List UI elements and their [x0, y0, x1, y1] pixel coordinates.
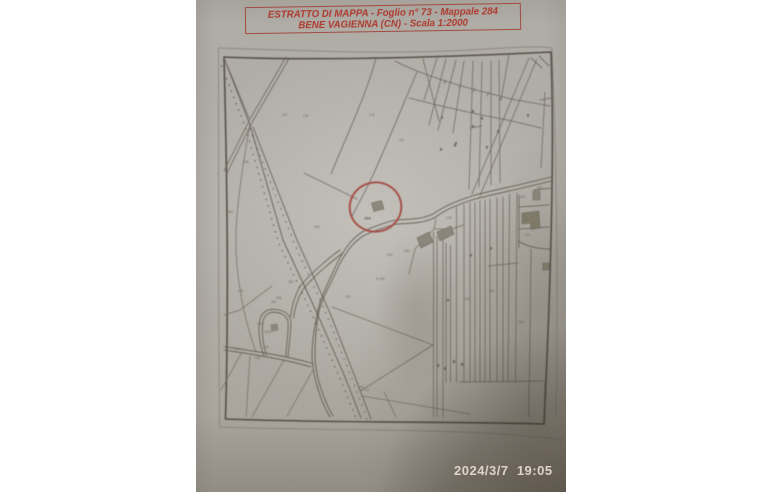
svg-text:297: 297	[525, 233, 531, 237]
svg-text:111: 111	[399, 138, 404, 142]
svg-text:301: 301	[271, 300, 277, 304]
svg-text:716: 716	[345, 295, 351, 299]
svg-text:278: 278	[446, 216, 452, 220]
svg-text:152: 152	[537, 186, 543, 190]
svg-text:295: 295	[314, 225, 320, 229]
svg-text:263: 263	[520, 195, 526, 199]
svg-text:150: 150	[489, 289, 495, 293]
svg-text:140: 140	[238, 289, 244, 293]
svg-text:295: 295	[404, 249, 410, 253]
svg-text:867: 867	[228, 210, 234, 214]
svg-text:1/6: 1/6	[365, 388, 370, 392]
svg-text:298: 298	[276, 296, 282, 300]
svg-text:294: 294	[518, 320, 524, 324]
svg-text:147: 147	[282, 113, 288, 117]
svg-text:234: 234	[257, 322, 263, 326]
svg-text:236: 236	[234, 347, 240, 351]
svg-text:295: 295	[255, 356, 261, 360]
svg-text:B 299: B 299	[376, 277, 385, 281]
svg-text:283: 283	[288, 280, 294, 284]
svg-text:139: 139	[303, 114, 309, 118]
svg-text:1309: 1309	[264, 330, 272, 334]
svg-text:178: 178	[369, 113, 375, 117]
svg-text:216: 216	[263, 345, 269, 349]
svg-text:284: 284	[364, 216, 371, 221]
svg-text:303: 303	[387, 253, 393, 257]
svg-text:446: 446	[243, 160, 249, 164]
svg-text:146: 146	[464, 297, 470, 301]
